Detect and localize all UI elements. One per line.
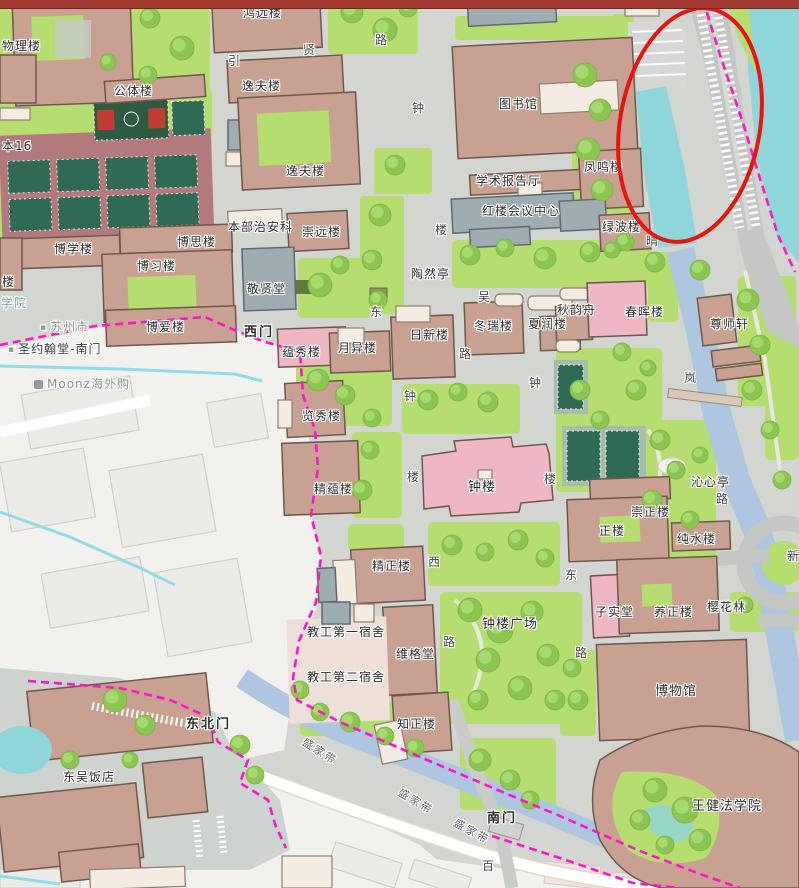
building-label: 精蕴楼 [314, 483, 353, 496]
road-name-char: 路 [375, 34, 388, 47]
building-label: 学术报告厅 [476, 175, 541, 188]
road-name-char: 百 [482, 860, 495, 873]
road-name-char: 路 [575, 647, 588, 660]
road-name-char: 东 [565, 569, 578, 582]
building-label: 本部治安科 [228, 221, 293, 234]
gate-label: 南门 [487, 812, 517, 826]
building-label: 博习楼 [137, 260, 176, 273]
building-label: 逸夫楼 [242, 80, 281, 93]
road-name-char: 钟 [412, 102, 425, 115]
street-name-label: 盛家带 [396, 787, 435, 817]
road-name-char: 西 [428, 556, 441, 569]
road-name-char: 新 [787, 550, 799, 563]
building-label: 图书馆 [499, 98, 538, 111]
building-label: 养正楼 [654, 606, 693, 619]
building-label: 红楼会议中心 [482, 205, 560, 218]
map-viewport[interactable]: 物理楼鸿远楼公体楼逸夫楼逸夫楼本16图书馆学术报告厅凤鸣楼红楼会议中心绿波楼本部… [0, 0, 799, 888]
building-label: 日新楼 [410, 329, 449, 342]
shop-icon [34, 380, 43, 389]
building-label: 秋韵舟 [557, 304, 596, 317]
building-label: 物理楼 [2, 40, 41, 53]
building-label: 月异楼 [338, 342, 377, 355]
building-label: 公体楼 [114, 85, 153, 98]
street-name-label: 盛家带 [300, 736, 339, 767]
building-label: 尊师轩 [710, 318, 749, 331]
building-label: 维格堂 [396, 648, 435, 661]
building-label: 精正楼 [372, 560, 411, 573]
building-label: 逸夫楼 [286, 165, 325, 178]
building-label: 冬瑞楼 [474, 320, 513, 333]
map-label-layer: 物理楼鸿远楼公体楼逸夫楼逸夫楼本16图书馆学术报告厅凤鸣楼红楼会议中心绿波楼本部… [0, 0, 799, 888]
gate-label: 西门 [244, 326, 274, 340]
poi-label: 育学院 [0, 297, 27, 310]
road-name-char: 引 [228, 55, 241, 68]
road-name-char: 路 [459, 348, 472, 361]
building-label: 沁心亭 [691, 476, 730, 489]
building-label: 楼 [2, 276, 15, 289]
building-label: 本16 [2, 140, 32, 153]
road-name-char: 楼 [435, 224, 448, 237]
building-label: 樱花林 [707, 601, 746, 614]
building-label: 夏润楼 [528, 318, 567, 331]
road-name-char: 路 [443, 636, 456, 649]
road-name-char: 晴 [646, 235, 659, 248]
building-label: 纯水楼 [677, 533, 716, 546]
building-label: 博学楼 [54, 243, 93, 256]
gate-label: 东北门 [186, 718, 231, 732]
building-label: 览秀楼 [302, 410, 341, 423]
building-label: 钟楼 [468, 481, 496, 495]
building-label: 敬贤堂 [247, 283, 286, 296]
building-label: 蕴秀楼 [282, 346, 321, 359]
building-label: 陶然亭 [411, 268, 450, 281]
building-label: 钟楼广场 [482, 618, 538, 632]
building-label: 博物馆 [655, 685, 697, 699]
building-label: 春晖楼 [625, 306, 664, 319]
road-name-char: 路 [716, 493, 729, 506]
building-label: 博思楼 [177, 236, 216, 249]
building-label: 知正楼 [397, 718, 436, 731]
road-name-char: 岚 [684, 372, 697, 385]
window-top-bar [0, 0, 799, 9]
road-name-char: 楼 [544, 473, 557, 486]
poi-label: Moonz海外购 [34, 378, 130, 391]
road-name-char: 钟 [529, 377, 542, 390]
building-label: 博爱楼 [146, 321, 185, 334]
street-name-label: 盛家带 [452, 817, 492, 846]
poi-label: 圣约翰堂-南门 [8, 343, 101, 356]
road-name-char: 贤 [303, 44, 316, 57]
road-name-char: 钟 [404, 390, 417, 403]
building-label: 教工第二宿舍 [307, 671, 385, 684]
building-label: 凤鸣楼 [584, 161, 623, 174]
building-label: 崇正楼 [631, 506, 670, 519]
building-label: 子实堂 [595, 606, 634, 619]
building-label: 王健法学院 [692, 800, 762, 814]
building-label: 崇远楼 [302, 226, 341, 239]
road-name-char: 楼 [407, 471, 420, 484]
building-label: 东吴饭店 [63, 771, 115, 784]
poi-label: 苏州市 [40, 321, 89, 334]
road-name-char: 东 [370, 306, 383, 319]
building-label: 教工第一宿舍 [307, 626, 385, 639]
building-label: 正楼 [599, 525, 625, 538]
road-name-char: 吴 [478, 291, 491, 304]
building-label: 绿波楼 [602, 221, 641, 234]
